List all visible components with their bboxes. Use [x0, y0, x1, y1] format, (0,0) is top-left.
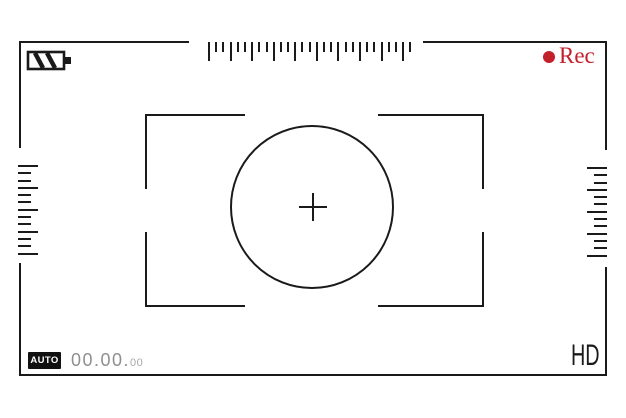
- tick-mark: [587, 255, 607, 257]
- camera-viewfinder-screen: Rec AUTO 00.00. 00 HD: [0, 0, 626, 418]
- focus-bracket-top-right: [378, 114, 484, 189]
- tick-mark: [352, 42, 354, 52]
- tick-mark: [266, 42, 268, 52]
- tick-mark: [594, 225, 607, 227]
- tick-mark: [309, 42, 311, 52]
- tick-mark: [594, 203, 607, 205]
- rec-label: Rec: [559, 44, 595, 67]
- frame-bottom-segment: [19, 374, 607, 376]
- tick-mark: [594, 174, 607, 176]
- tick-mark: [18, 231, 38, 233]
- tick-mark: [18, 216, 31, 218]
- tick-mark: [587, 233, 607, 235]
- tick-mark: [18, 238, 31, 240]
- tick-mark: [587, 189, 607, 191]
- tick-mark: [208, 42, 210, 61]
- tick-mark: [18, 201, 31, 203]
- rec-indicator: Rec: [543, 44, 595, 67]
- tick-mark: [280, 42, 282, 52]
- tick-mark: [594, 240, 607, 242]
- tick-mark: [258, 42, 260, 52]
- frame-left-top-segment: [19, 41, 21, 148]
- tick-mark: [587, 211, 607, 213]
- frame-right-top-segment: [605, 41, 607, 150]
- tick-mark: [402, 42, 404, 61]
- tick-mark: [222, 42, 224, 52]
- tick-mark: [594, 196, 607, 198]
- focus-bracket-bottom-left: [145, 232, 245, 307]
- tick-mark: [18, 187, 38, 189]
- tick-mark: [18, 253, 38, 255]
- tick-mark: [251, 42, 253, 61]
- tick-mark: [18, 245, 31, 247]
- tick-mark: [594, 182, 607, 184]
- battery-level-icon: [26, 49, 72, 77]
- auto-mode-badge: AUTO: [28, 352, 61, 369]
- timer-frames-digits: 00: [130, 354, 143, 373]
- frame-right-bottom-segment: [605, 267, 607, 376]
- tick-mark: [18, 180, 31, 182]
- tick-mark: [18, 172, 31, 174]
- tick-mark: [330, 42, 332, 52]
- tick-mark: [18, 194, 31, 196]
- tick-mark: [294, 42, 296, 61]
- tick-mark: [316, 42, 318, 61]
- focus-bracket-top-left: [145, 114, 245, 189]
- record-dot-icon: [543, 51, 555, 63]
- tick-mark: [244, 42, 246, 52]
- tick-mark: [381, 42, 383, 61]
- tick-mark: [337, 42, 339, 61]
- right-scale: [587, 167, 607, 257]
- tick-mark: [366, 42, 368, 52]
- tick-mark: [594, 247, 607, 249]
- tick-mark: [409, 42, 411, 52]
- tick-mark: [323, 42, 325, 52]
- tick-mark: [273, 42, 275, 61]
- recording-timer: 00.00. 00: [71, 351, 143, 370]
- frame-top-left-segment: [19, 41, 189, 43]
- tick-mark: [301, 42, 303, 52]
- tick-mark: [18, 165, 38, 167]
- timer-main-digits: 00.00.: [71, 351, 130, 370]
- hd-quality-label: HD: [571, 341, 600, 371]
- tick-mark: [237, 42, 239, 52]
- focus-bracket-bottom-right: [378, 232, 484, 307]
- tick-mark: [587, 167, 607, 169]
- tick-mark: [230, 42, 232, 61]
- tick-mark: [388, 42, 390, 52]
- tick-mark: [359, 42, 361, 61]
- tick-mark: [395, 42, 397, 52]
- crosshair-icon: [312, 193, 314, 221]
- frame-left-bottom-segment: [19, 263, 21, 376]
- tick-mark: [18, 223, 31, 225]
- tick-mark: [215, 42, 217, 52]
- tick-mark: [373, 42, 375, 52]
- tick-mark: [345, 42, 347, 52]
- left-scale: [18, 165, 38, 255]
- top-ruler: [208, 42, 411, 61]
- tick-mark: [594, 218, 607, 220]
- tick-mark: [18, 209, 38, 211]
- tick-mark: [287, 42, 289, 52]
